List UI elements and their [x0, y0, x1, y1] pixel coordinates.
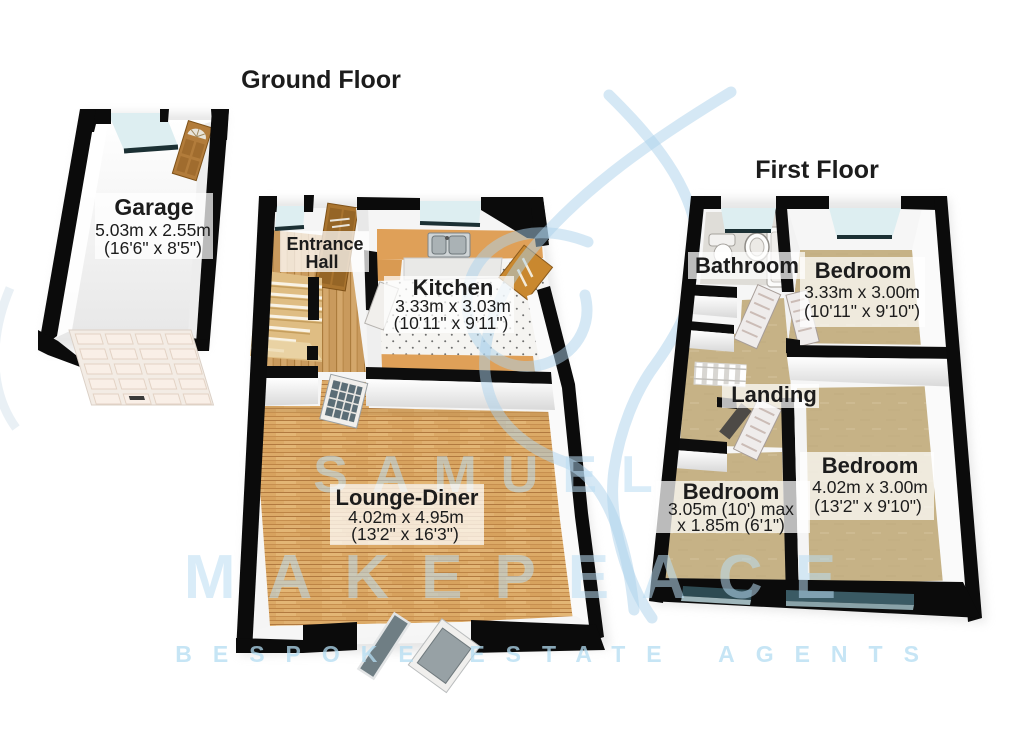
svg-text:Hall: Hall	[305, 252, 338, 272]
svg-text:Bedroom: Bedroom	[822, 453, 919, 478]
svg-text:Ground Floor: Ground Floor	[241, 66, 401, 94]
svg-text:First Floor: First Floor	[755, 156, 879, 184]
svg-text:(10'11" x 9'10"): (10'11" x 9'10")	[804, 301, 920, 321]
svg-text:4.02m x 3.00m: 4.02m x 3.00m	[812, 477, 928, 497]
svg-text:(16'6" x 8'5"): (16'6" x 8'5")	[104, 238, 202, 258]
svg-text:x 1.85m (6'1"): x 1.85m (6'1")	[677, 515, 785, 535]
svg-text:BESPOKE: BESPOKE	[175, 641, 434, 667]
svg-text:5.03m x 2.55m: 5.03m x 2.55m	[95, 220, 211, 240]
svg-text:Bathroom: Bathroom	[695, 253, 799, 278]
svg-text:Landing: Landing	[731, 382, 817, 407]
svg-text:ESTATE: ESTATE	[469, 641, 682, 667]
svg-text:(13'2" x 16'3"): (13'2" x 16'3")	[351, 524, 459, 544]
svg-text:(13'2" x 9'10"): (13'2" x 9'10")	[814, 496, 922, 516]
svg-text:AGENTS: AGENTS	[718, 641, 940, 667]
svg-text:Garage: Garage	[114, 194, 193, 220]
svg-text:Bedroom: Bedroom	[815, 258, 912, 283]
svg-text:(10'11" x 9'11"): (10'11" x 9'11")	[394, 313, 509, 333]
svg-text:MAKEPEACE: MAKEPEACE	[184, 543, 868, 612]
svg-text:3.33m x 3.00m: 3.33m x 3.00m	[804, 282, 920, 302]
svg-text:Entrance: Entrance	[286, 234, 363, 254]
